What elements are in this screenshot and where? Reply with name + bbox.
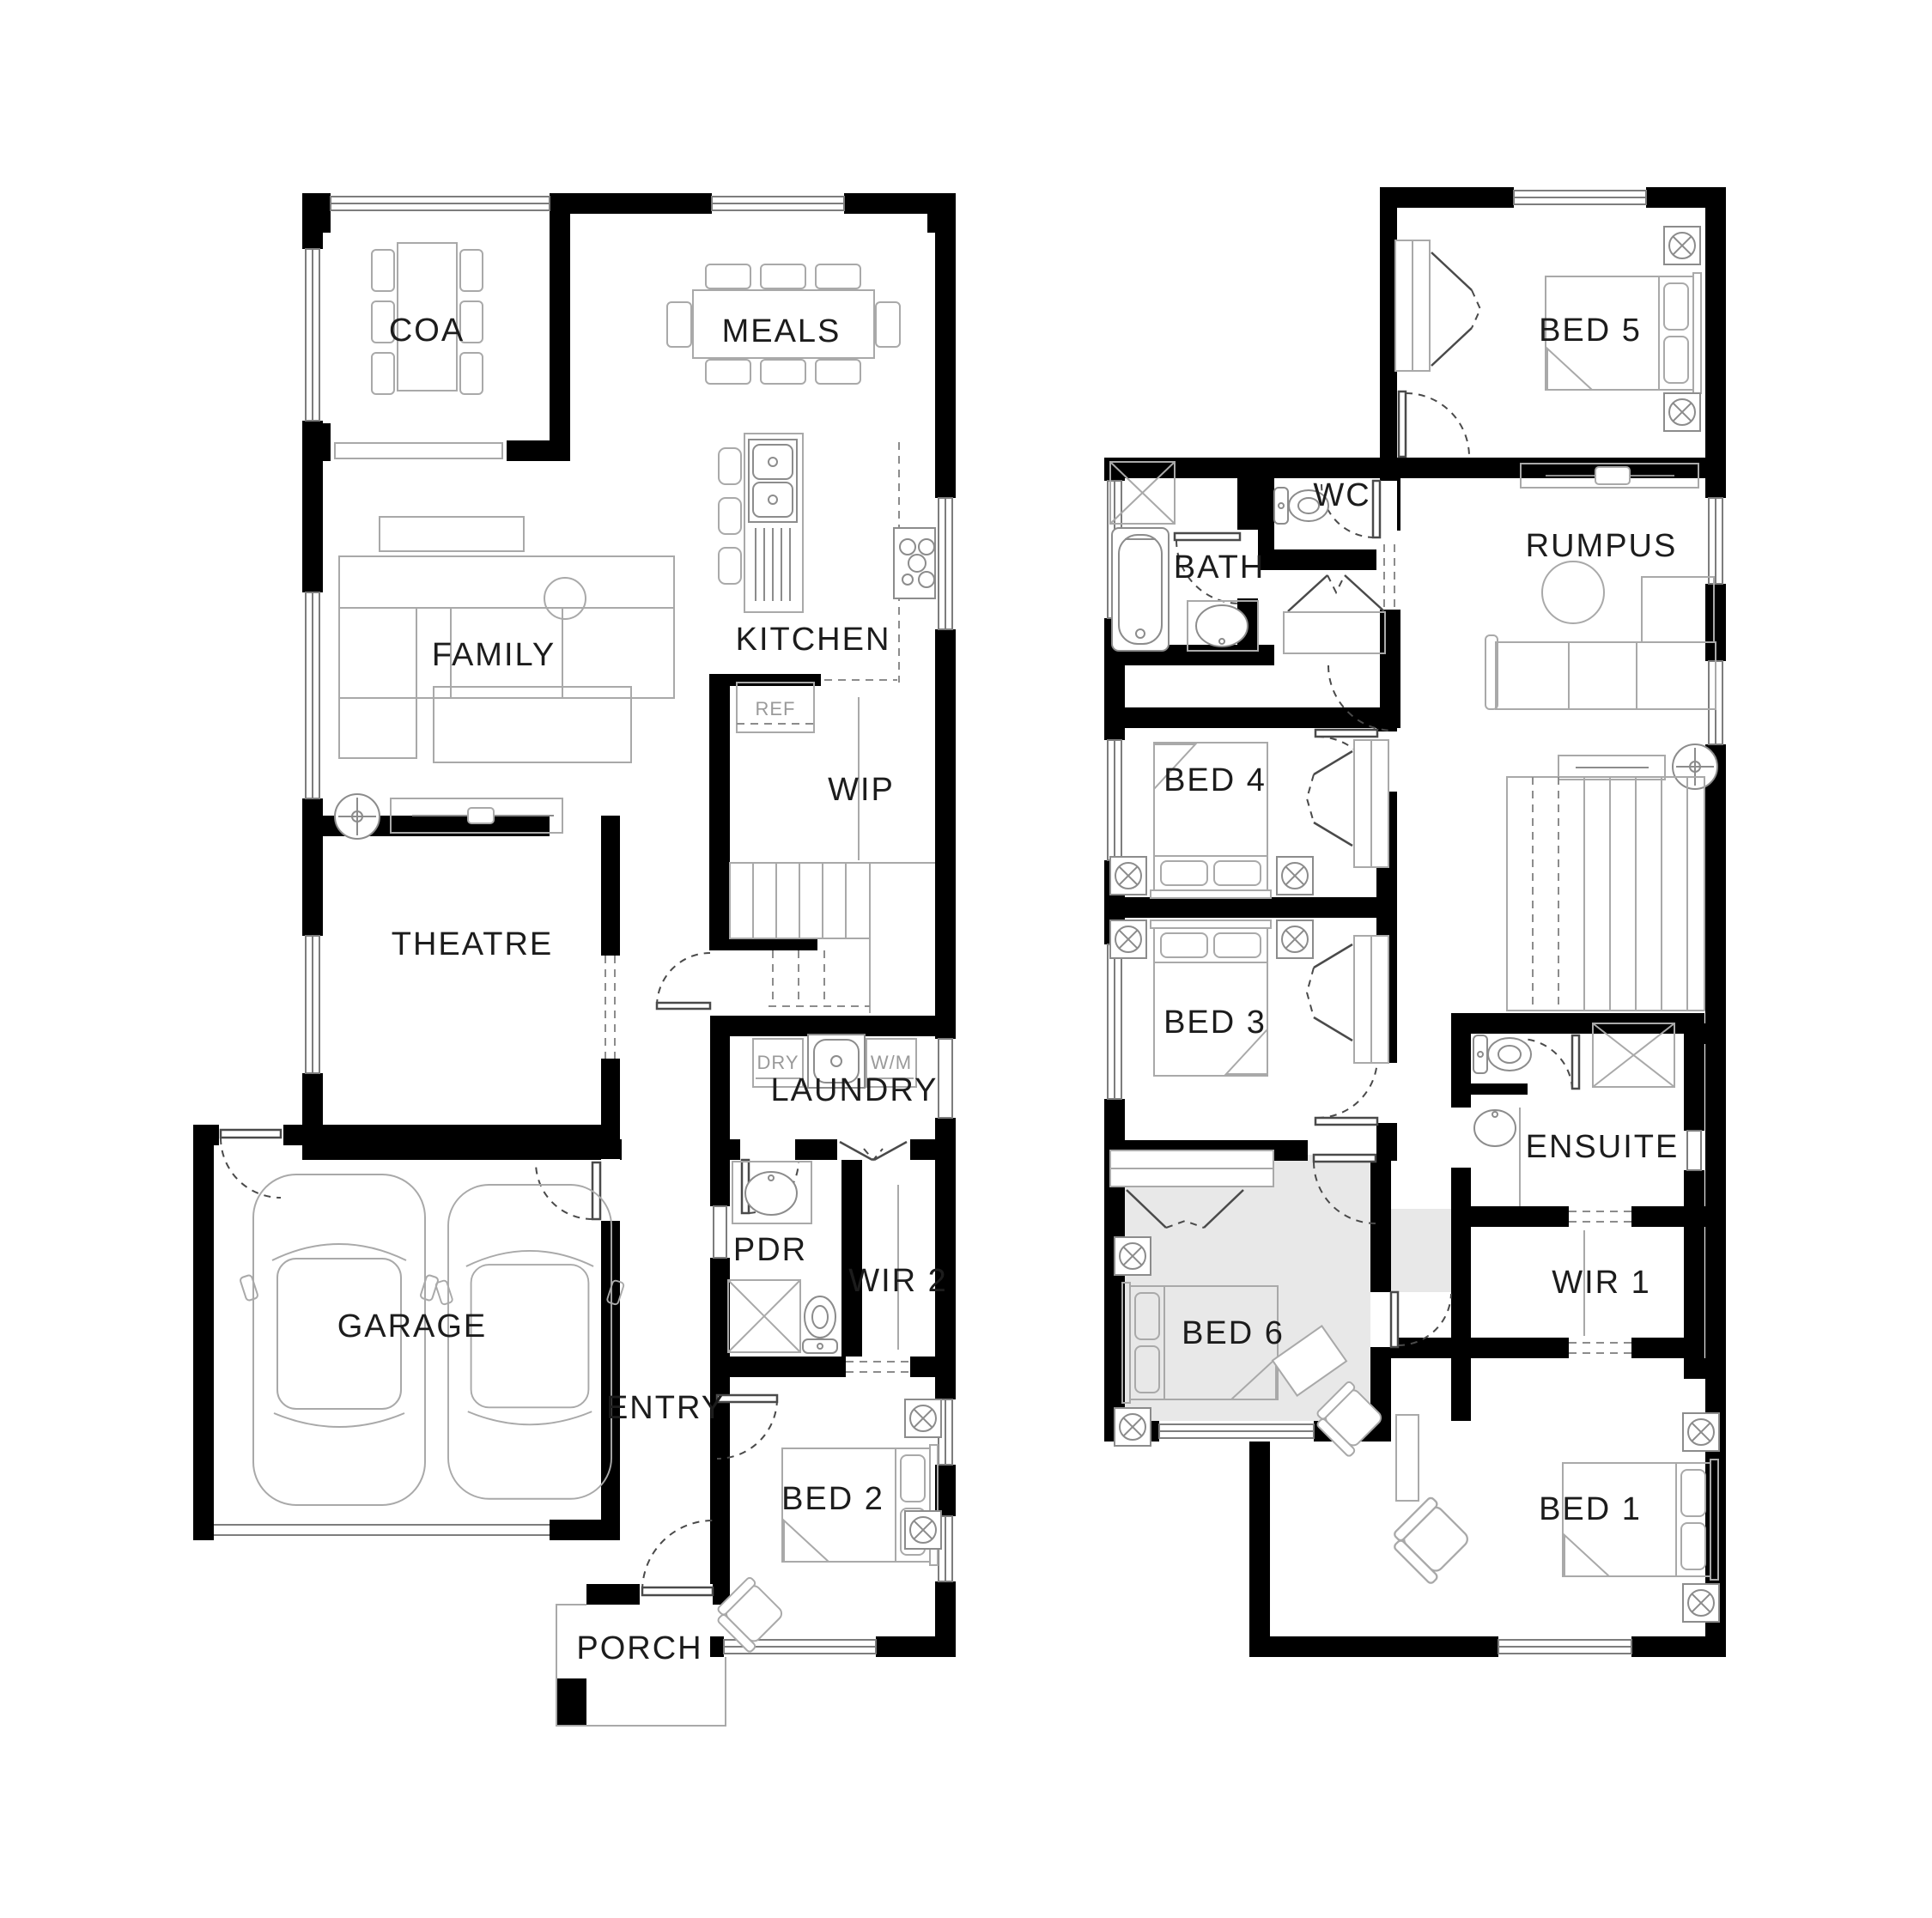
appliance-label-ref: REF	[756, 698, 796, 719]
room-label-ensuite: ENSUITE	[1526, 1129, 1680, 1165]
room-label-pdr: PDR	[733, 1232, 807, 1268]
upper-floor-plan: BED 5 WC BATH RUMPUS BED 4 BED 3 ENSUITE…	[1104, 187, 1726, 1657]
room-label-family: FAMILY	[432, 637, 556, 673]
room-label-wc: WC	[1313, 477, 1370, 513]
room-label-bed4: BED 4	[1163, 762, 1267, 798]
appliance-label-dry: DRY	[756, 1052, 799, 1073]
room-label-porch: PORCH	[576, 1630, 702, 1666]
room-label-entry: ENTRY	[606, 1390, 725, 1426]
room-label-meals: MEALS	[722, 313, 841, 349]
ground-floor-labels: COA MEALS FAMILY KITCHEN WIP REF THEATRE…	[337, 313, 948, 1666]
room-label-bath: BATH	[1174, 549, 1266, 586]
room-label-bed2: BED 2	[781, 1481, 884, 1517]
room-label-bed3: BED 3	[1163, 1005, 1267, 1041]
floor-plan-page: COA MEALS FAMILY KITCHEN WIP REF THEATRE…	[0, 0, 1932, 1918]
room-label-laundry: LAUNDRY	[771, 1072, 939, 1108]
room-label-coa: COA	[389, 313, 465, 349]
floor-plan-drawing: COA MEALS FAMILY KITCHEN WIP REF THEATRE…	[0, 0, 1932, 1918]
upper-floor-windows	[1104, 187, 1726, 1657]
room-label-wir1: WIR 1	[1552, 1265, 1651, 1301]
ground-floor-plan: COA MEALS FAMILY KITCHEN WIP REF THEATRE…	[193, 193, 956, 1726]
room-label-bed6: BED 6	[1182, 1315, 1285, 1351]
ground-floor-windows	[214, 193, 956, 1657]
room-label-garage: GARAGE	[337, 1308, 488, 1344]
room-label-theatre: THEATRE	[392, 926, 554, 962]
room-label-rumpus: RUMPUS	[1526, 528, 1678, 564]
appliance-label-wm: W/M	[871, 1052, 912, 1073]
room-label-bed1: BED 1	[1539, 1491, 1642, 1527]
room-label-kitchen: KITCHEN	[736, 622, 891, 658]
room-label-wip: WIP	[828, 772, 895, 808]
room-label-wir2: WIR 2	[848, 1263, 948, 1299]
room-label-bed5: BED 5	[1539, 313, 1642, 349]
